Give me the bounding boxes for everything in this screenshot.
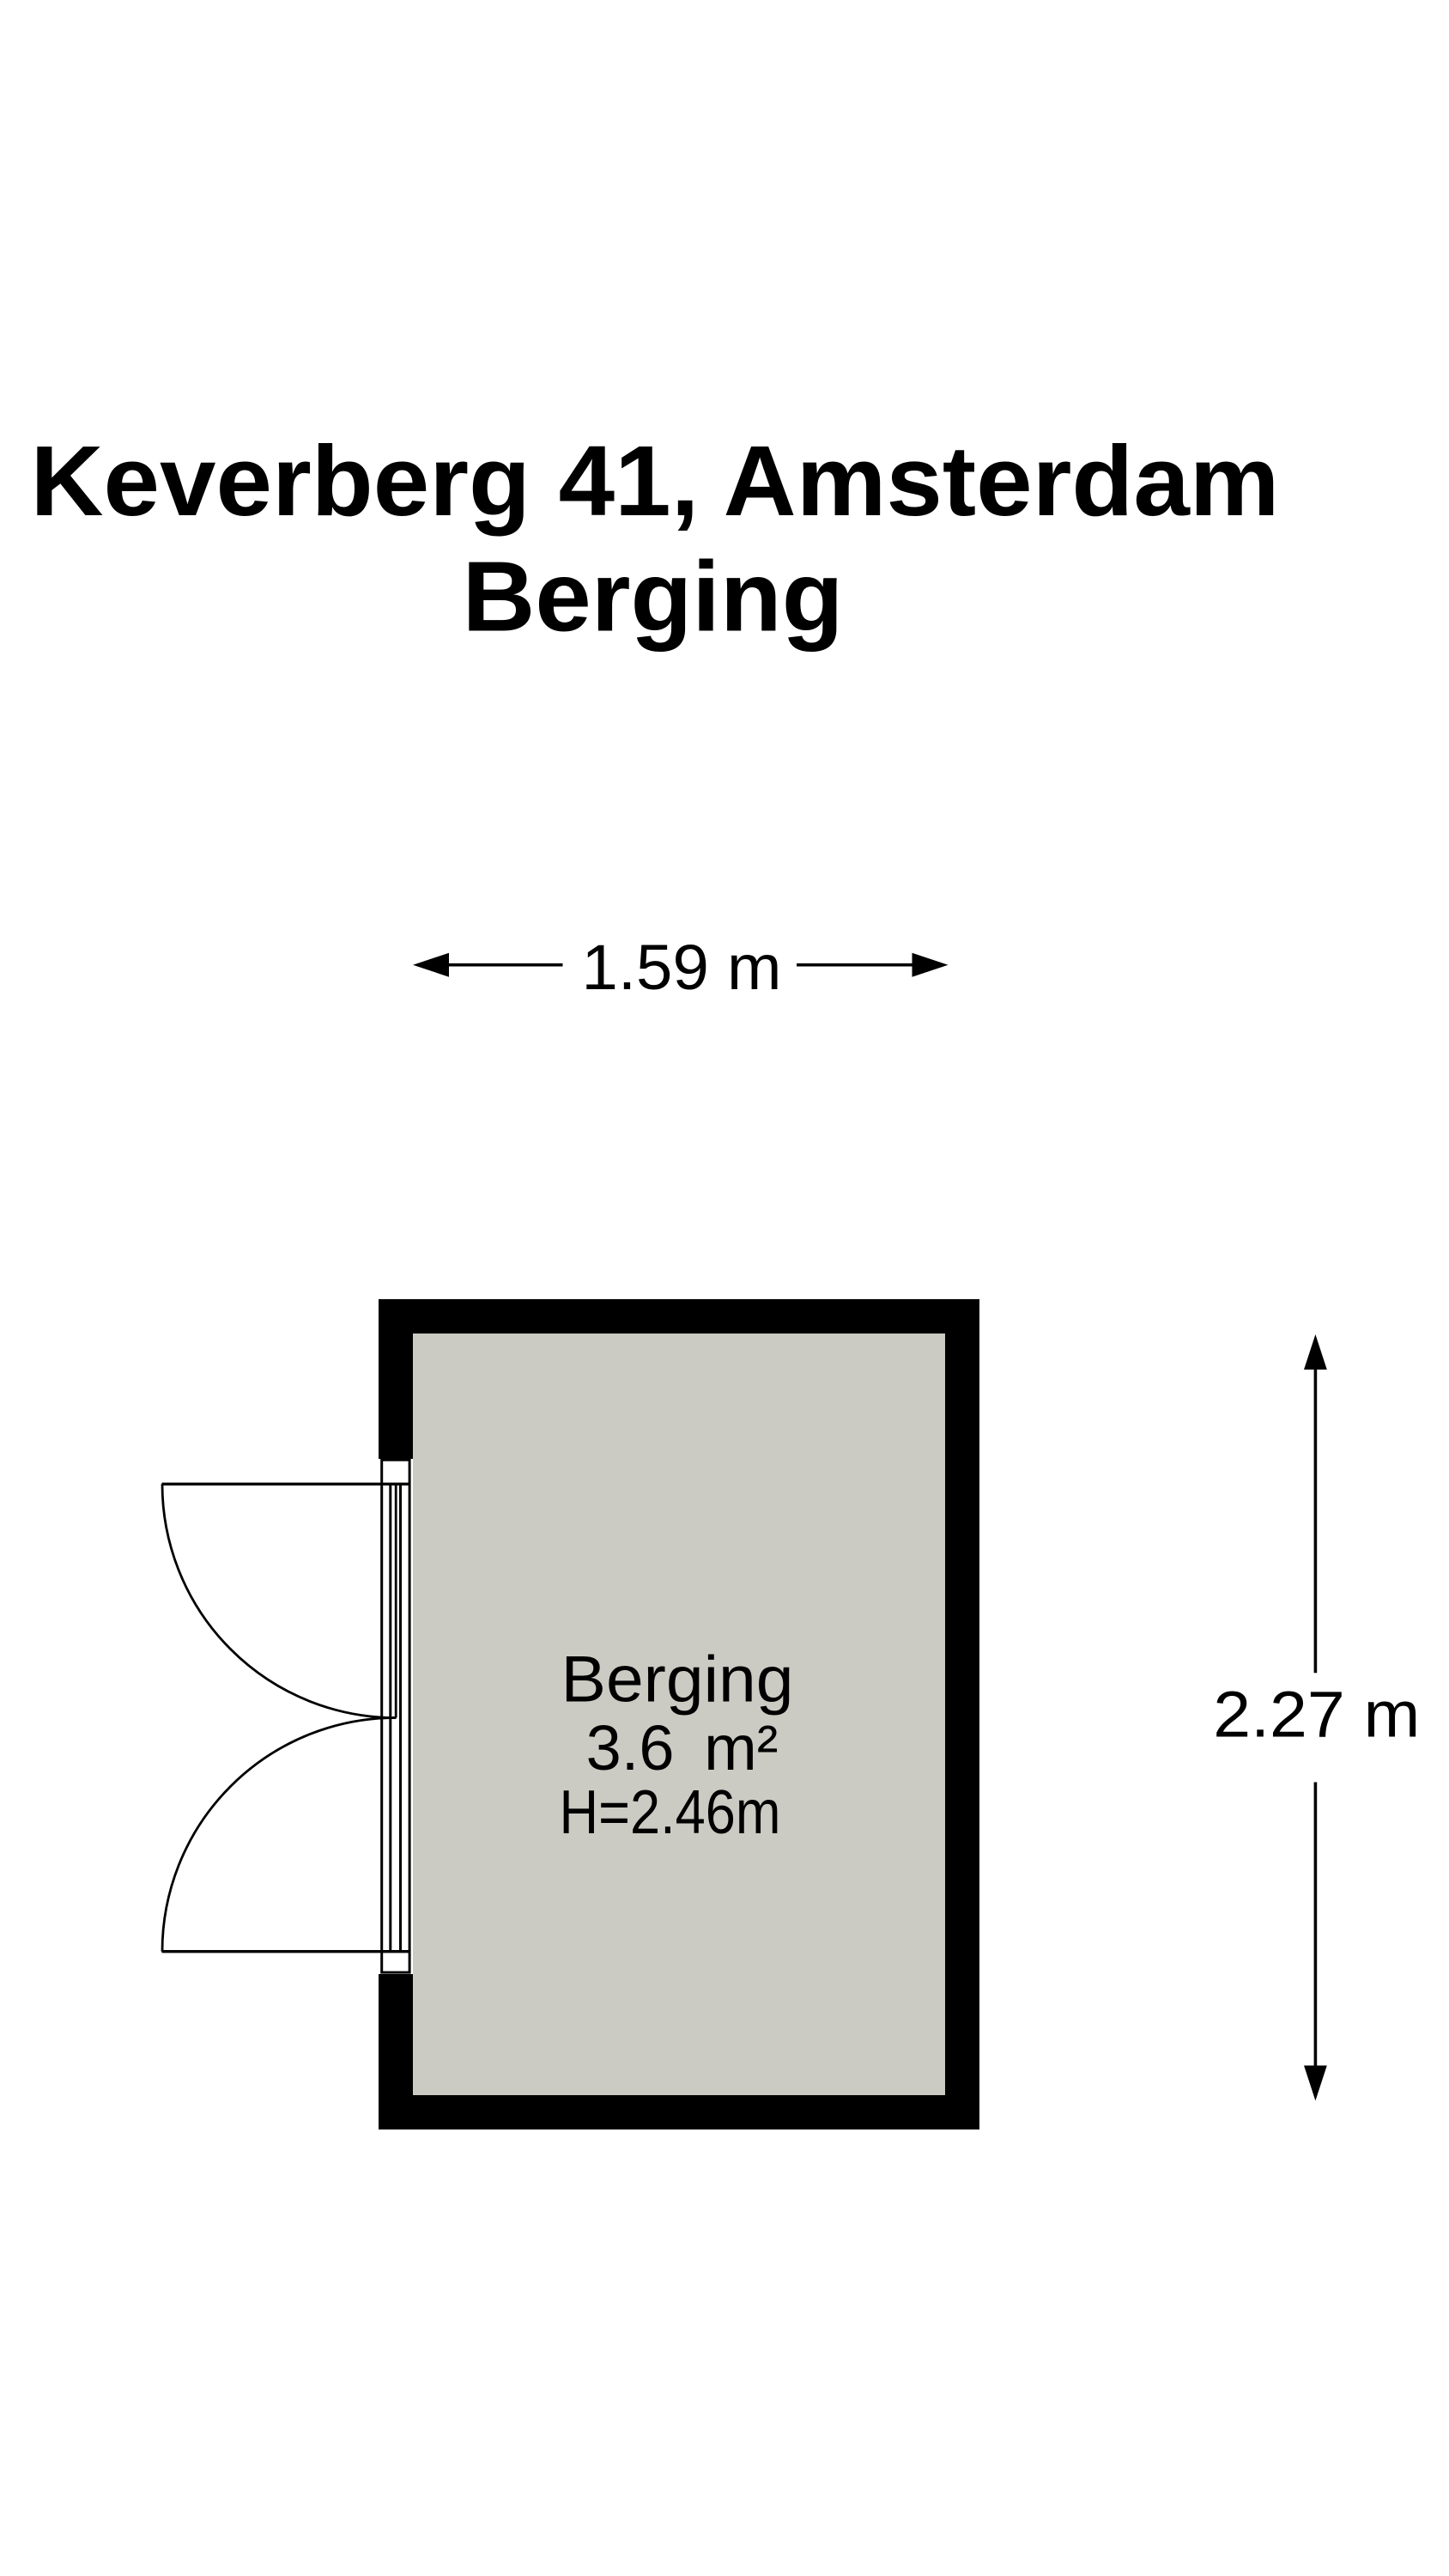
- svg-text:Berging: Berging: [561, 1643, 794, 1716]
- svg-text:2.27 m: 2.27 m: [1213, 1679, 1420, 1752]
- svg-text:1.59 m: 1.59 m: [582, 932, 782, 1003]
- svg-text:Keverberg 41, Amsterdam: Keverberg 41, Amsterdam: [31, 425, 1280, 537]
- svg-text:3.6 m²: 3.6 m²: [586, 1712, 779, 1783]
- svg-text:Berging: Berging: [463, 541, 844, 653]
- svg-text:H=2.46m: H=2.46m: [560, 1778, 781, 1847]
